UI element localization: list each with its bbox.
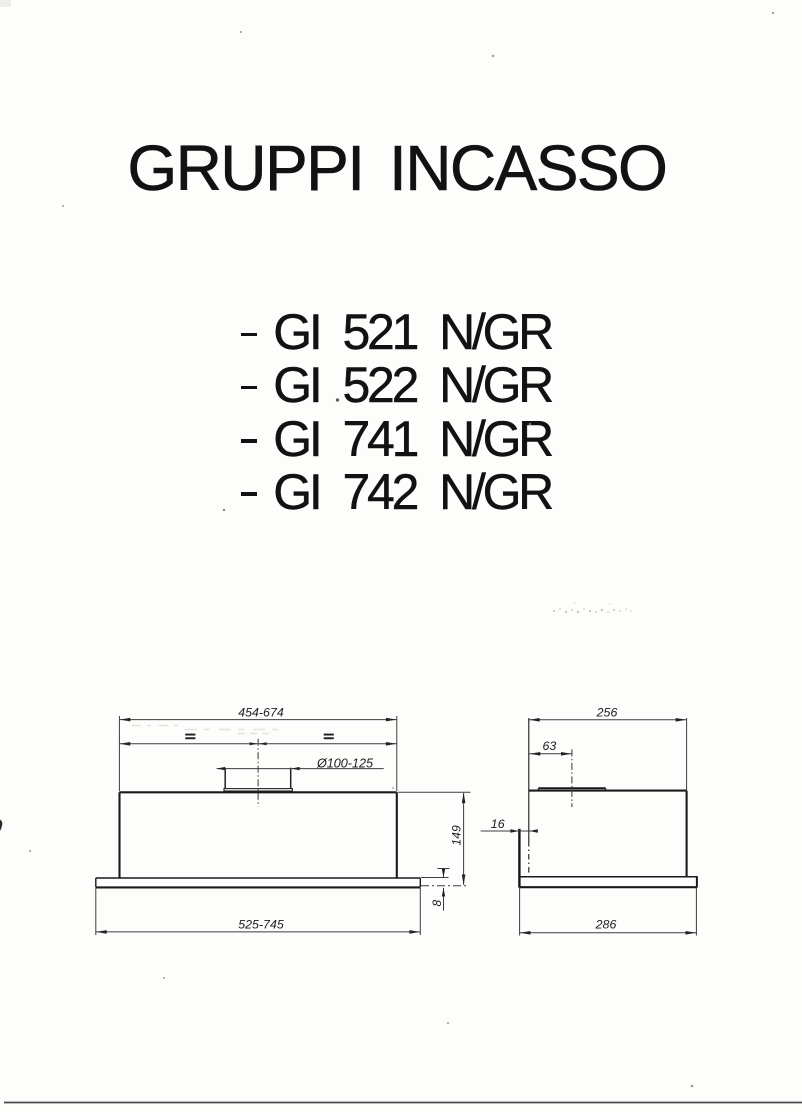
svg-text:8: 8 [430,900,444,907]
svg-text:63: 63 [543,739,557,753]
svg-text:Ø100-125: Ø100-125 [316,757,374,771]
svg-text:149: 149 [450,825,464,846]
svg-text:286: 286 [595,918,617,932]
svg-text:256: 256 [596,706,618,720]
svg-text:525-745: 525-745 [238,917,284,931]
svg-text:454-674: 454-674 [238,706,284,720]
svg-text:16: 16 [491,817,505,831]
